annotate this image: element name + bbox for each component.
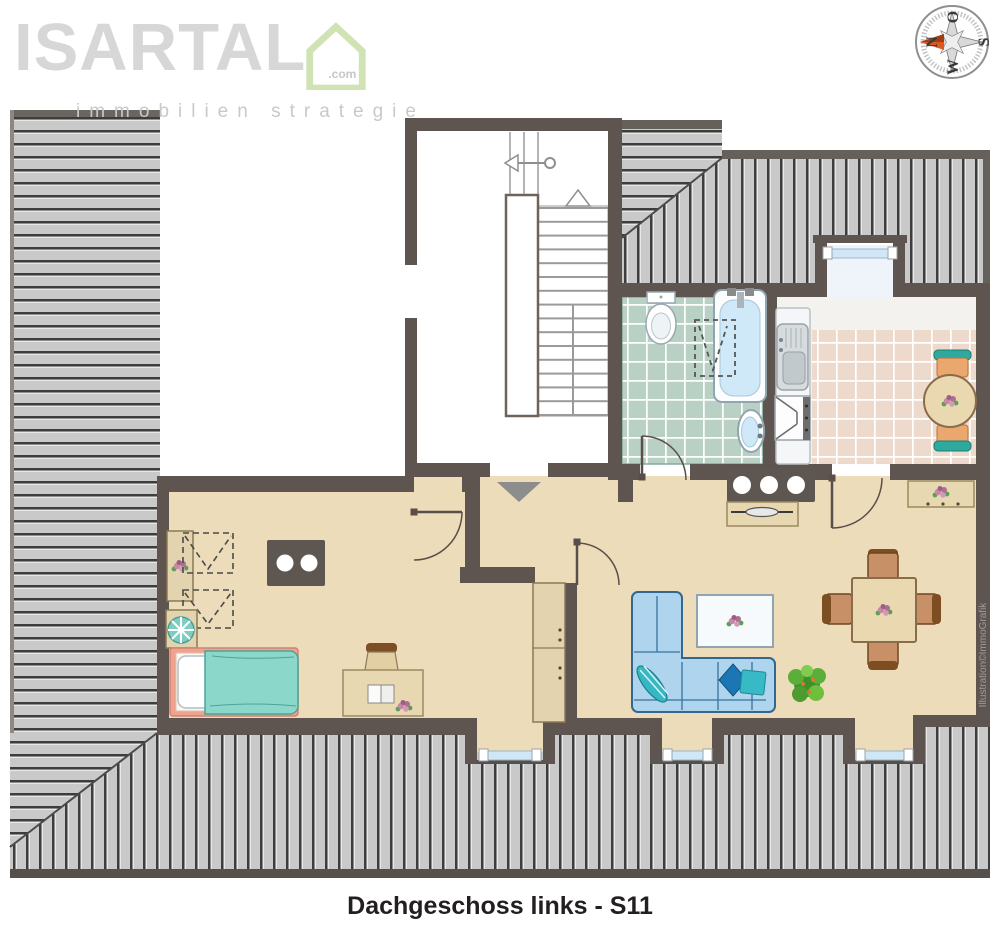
illustration-credit: Illustration©ImmoGrafik	[978, 602, 989, 708]
stairwell	[417, 131, 608, 464]
compass-label-w: W	[945, 59, 962, 75]
plant	[788, 665, 826, 702]
compass-label-s: S	[976, 37, 993, 46]
dormer-window-2	[663, 749, 712, 761]
compass-label-e: O	[945, 11, 962, 23]
hall-console	[727, 502, 798, 526]
living-console	[908, 481, 974, 507]
plan-caption: Dachgeschoss links - S11	[0, 892, 1000, 921]
bed	[170, 648, 298, 716]
teal-cushion	[740, 670, 766, 695]
dormer-window-3	[856, 749, 913, 761]
compass-label-n: N	[924, 36, 941, 48]
roof-hatch-top-middle	[622, 120, 722, 283]
hall-wardrobe-cabinet	[533, 583, 565, 722]
floorplan-page: ISARTAL .com immobilien strategie Dachge…	[0, 0, 1000, 937]
compass-rose: N O S W	[916, 6, 993, 78]
logo-tld: .com	[328, 67, 356, 81]
logo-wordmark: ISARTAL	[14, 14, 306, 81]
stove	[775, 396, 810, 440]
bedroom-sideboard	[167, 531, 193, 601]
floorplan-drawing: Illustration©ImmoGrafik N O S W	[0, 0, 1000, 937]
toilet	[646, 292, 676, 344]
hall-dresser	[727, 468, 815, 502]
kitchen-counter	[775, 308, 810, 464]
dormer-window-1	[479, 749, 541, 761]
kitchen-dormer-window	[823, 247, 897, 259]
logo-house-icon: .com	[300, 16, 370, 95]
open-book	[368, 685, 394, 703]
stair-divider	[506, 195, 538, 416]
bedroom-dresser	[267, 540, 325, 586]
bathroom-sink	[738, 410, 764, 452]
logo-tagline: immobilien strategie	[76, 101, 344, 123]
logo: ISARTAL .com immobilien strategie	[14, 14, 344, 123]
bedroom-stool	[166, 610, 197, 648]
coffee-table	[697, 595, 773, 647]
kitchen-sink	[777, 324, 808, 390]
